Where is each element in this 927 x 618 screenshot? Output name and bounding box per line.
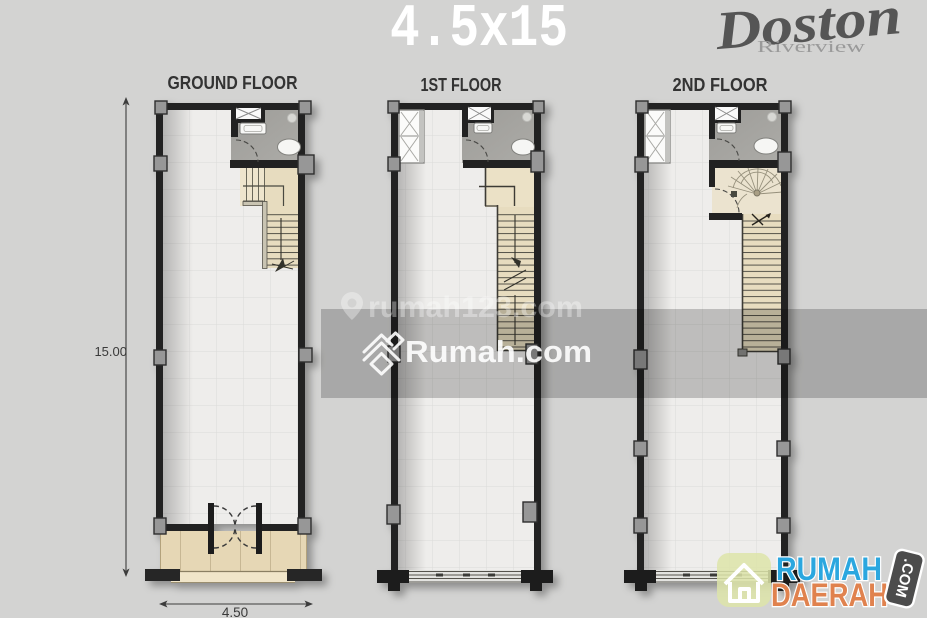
svg-text:4.5x15: 4.5x15 — [390, 0, 568, 64]
svg-text:DAERAH: DAERAH — [771, 577, 888, 613]
svg-text:2ND FLOOR: 2ND FLOOR — [673, 75, 768, 95]
svg-text:GROUND FLOOR: GROUND FLOOR — [168, 73, 298, 93]
svg-text:1ST FLOOR: 1ST FLOOR — [421, 75, 502, 95]
svg-text:4.50: 4.50 — [222, 605, 248, 618]
svg-text:Riverview: Riverview — [757, 37, 866, 56]
svg-text:15.00: 15.00 — [94, 344, 127, 359]
svg-text:rumah123.com: rumah123.com — [368, 291, 583, 324]
svg-text:Rumah.com: Rumah.com — [405, 334, 592, 369]
